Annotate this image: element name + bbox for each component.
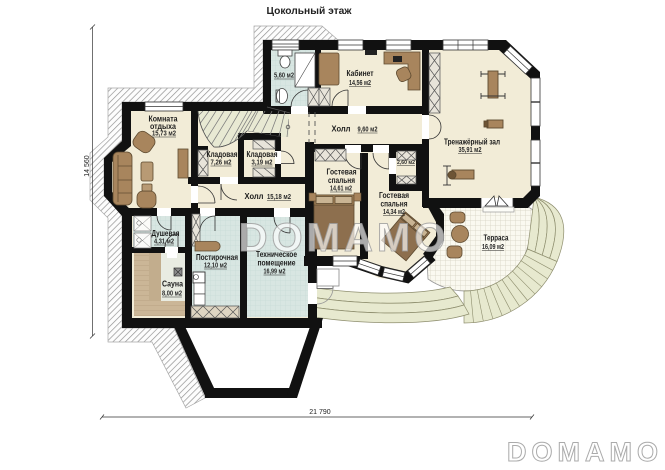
svg-text:3,19 м2: 3,19 м2 [252, 160, 273, 167]
svg-text:15,73 м2: 15,73 м2 [152, 131, 176, 138]
svg-text:Холл: Холл [332, 125, 351, 134]
svg-text:14,56 м2: 14,56 м2 [349, 80, 371, 87]
svg-text:Кладовая: Кладовая [247, 150, 278, 159]
svg-text:Сауна: Сауна [162, 280, 183, 289]
svg-text:14,34 м2: 14,34 м2 [383, 209, 405, 216]
svg-text:21 790: 21 790 [309, 409, 331, 416]
svg-text:5,60 м2: 5,60 м2 [274, 73, 294, 80]
svg-text:16,99 м2: 16,99 м2 [264, 269, 286, 276]
svg-text:Тренажёрный зал: Тренажёрный зал [444, 138, 500, 147]
svg-text:DOMAMO: DOMAMO [239, 216, 450, 260]
svg-text:9,60 м2: 9,60 м2 [358, 127, 378, 134]
svg-text:Кабинет: Кабинет [347, 68, 374, 78]
svg-text:14,61 м2: 14,61 м2 [330, 186, 352, 193]
svg-text:7,26 м2: 7,26 м2 [211, 160, 232, 167]
svg-text:35,91 м2: 35,91 м2 [459, 147, 482, 154]
svg-text:4,31 м2: 4,31 м2 [154, 239, 174, 246]
svg-text:Цокольный этаж: Цокольный этаж [267, 5, 353, 17]
svg-text:Постирочная: Постирочная [196, 253, 238, 262]
svg-text:спальня: спальня [381, 200, 408, 209]
svg-text:Душевая: Душевая [152, 229, 180, 238]
svg-text:16,09 м2: 16,09 м2 [482, 244, 504, 251]
svg-text:DOMAMO: DOMAMO [507, 437, 663, 467]
svg-text:14 560: 14 560 [84, 155, 91, 177]
svg-text:15,18 м2: 15,18 м2 [267, 194, 291, 201]
svg-text:Холл: Холл [245, 192, 264, 201]
svg-text:12,10 м2: 12,10 м2 [204, 263, 227, 270]
svg-text:2,60 м2: 2,60 м2 [397, 160, 415, 166]
svg-text:спальня: спальня [328, 176, 355, 185]
svg-text:Кладовая: Кладовая [207, 150, 238, 159]
svg-text:Терраса: Терраса [484, 234, 509, 243]
svg-text:8,00 м2: 8,00 м2 [162, 291, 182, 298]
